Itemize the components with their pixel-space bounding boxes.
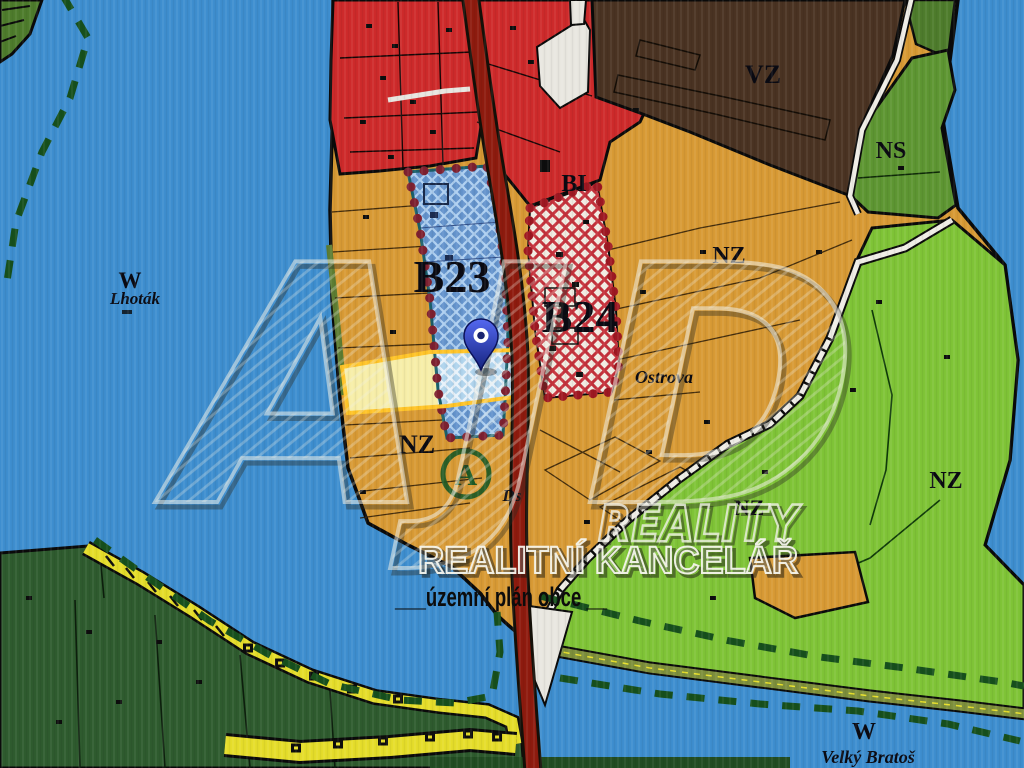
watermark-plan-line: ___územní plán obce __: [394, 582, 607, 612]
watermark: AJD AJD REALITY REALITY REALITNÍ KANCELÁ…: [136, 195, 918, 612]
zoning-map-screenshot: W Lhoták B23 B24 BI VZ NS NZ NZ NZ NZ Os…: [0, 0, 1024, 768]
zoning-map[interactable]: W Lhoták B23 B24 BI VZ NS NZ NZ NZ NZ Os…: [0, 0, 1024, 768]
watermark-kancelar: REALITNÍ KANCELÁŘ: [418, 538, 798, 582]
